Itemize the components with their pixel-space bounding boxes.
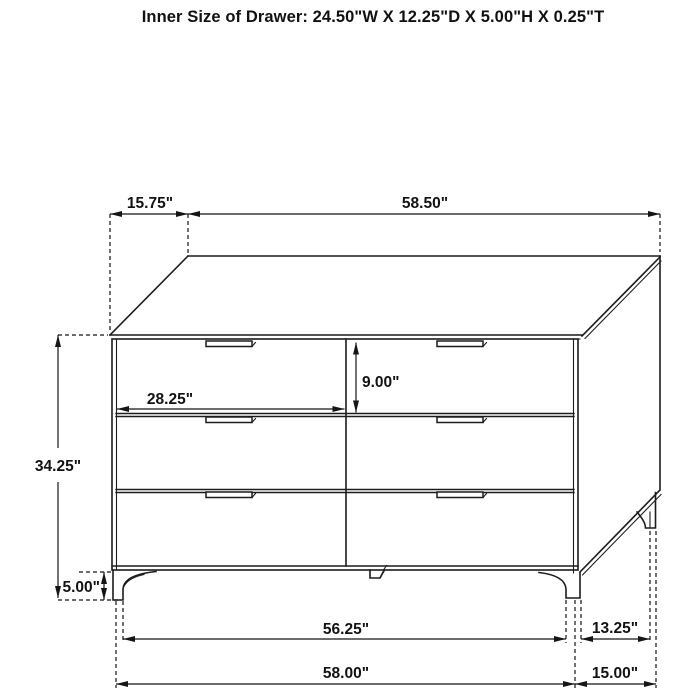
dim-top-offset: 15.75": [110, 195, 188, 332]
drawer-handle: [206, 492, 256, 498]
dresser-front: [112, 339, 578, 573]
dim-overall-height-label: 34.25": [35, 458, 81, 475]
dim-leg-height: 5.00": [62, 572, 112, 600]
dim-side-depth-label: 15.00": [592, 665, 638, 682]
dim-side-depth: 15.00": [575, 531, 656, 688]
dresser-diagram: 15.75" 58.50" 34.25" 5.00" 9.00" 28.25": [0, 0, 700, 700]
dim-drawer-height-label: 9.00": [362, 374, 400, 391]
drawer-handle: [206, 341, 256, 347]
dim-base-width: 58.00": [116, 600, 575, 688]
drawer-handle: [206, 417, 256, 423]
dim-base-inner-width-label: 56.25": [323, 621, 369, 638]
drawer-handle: [437, 492, 487, 498]
dim-top-width-label: 58.50": [402, 195, 448, 212]
dimension-drawing-page: Inner Size of Drawer: 24.50"W X 12.25"D …: [0, 0, 700, 700]
dim-side-inner-depth: 13.25": [581, 531, 650, 643]
drawer-handle: [437, 417, 487, 423]
dim-side-inner-depth-label: 13.25": [592, 620, 638, 637]
dim-top-width: 58.50": [188, 195, 660, 252]
dresser-side: [580, 256, 661, 575]
front-right-leg: [539, 573, 580, 599]
page-title: Inner Size of Drawer: 24.50"W X 12.25"D …: [0, 8, 700, 27]
drawer-handle: [437, 341, 487, 347]
dim-leg-height-label: 5.00": [62, 579, 100, 596]
dim-base-width-label: 58.00": [323, 665, 369, 682]
front-left-leg: [113, 570, 156, 600]
dim-top-offset-label: 15.75": [127, 195, 173, 212]
dim-base-inner-width: 56.25": [123, 600, 566, 643]
dresser-top: [110, 256, 661, 339]
dim-overall-height: 34.25": [35, 335, 118, 600]
dim-drawer-width-label: 28.25": [147, 391, 193, 408]
